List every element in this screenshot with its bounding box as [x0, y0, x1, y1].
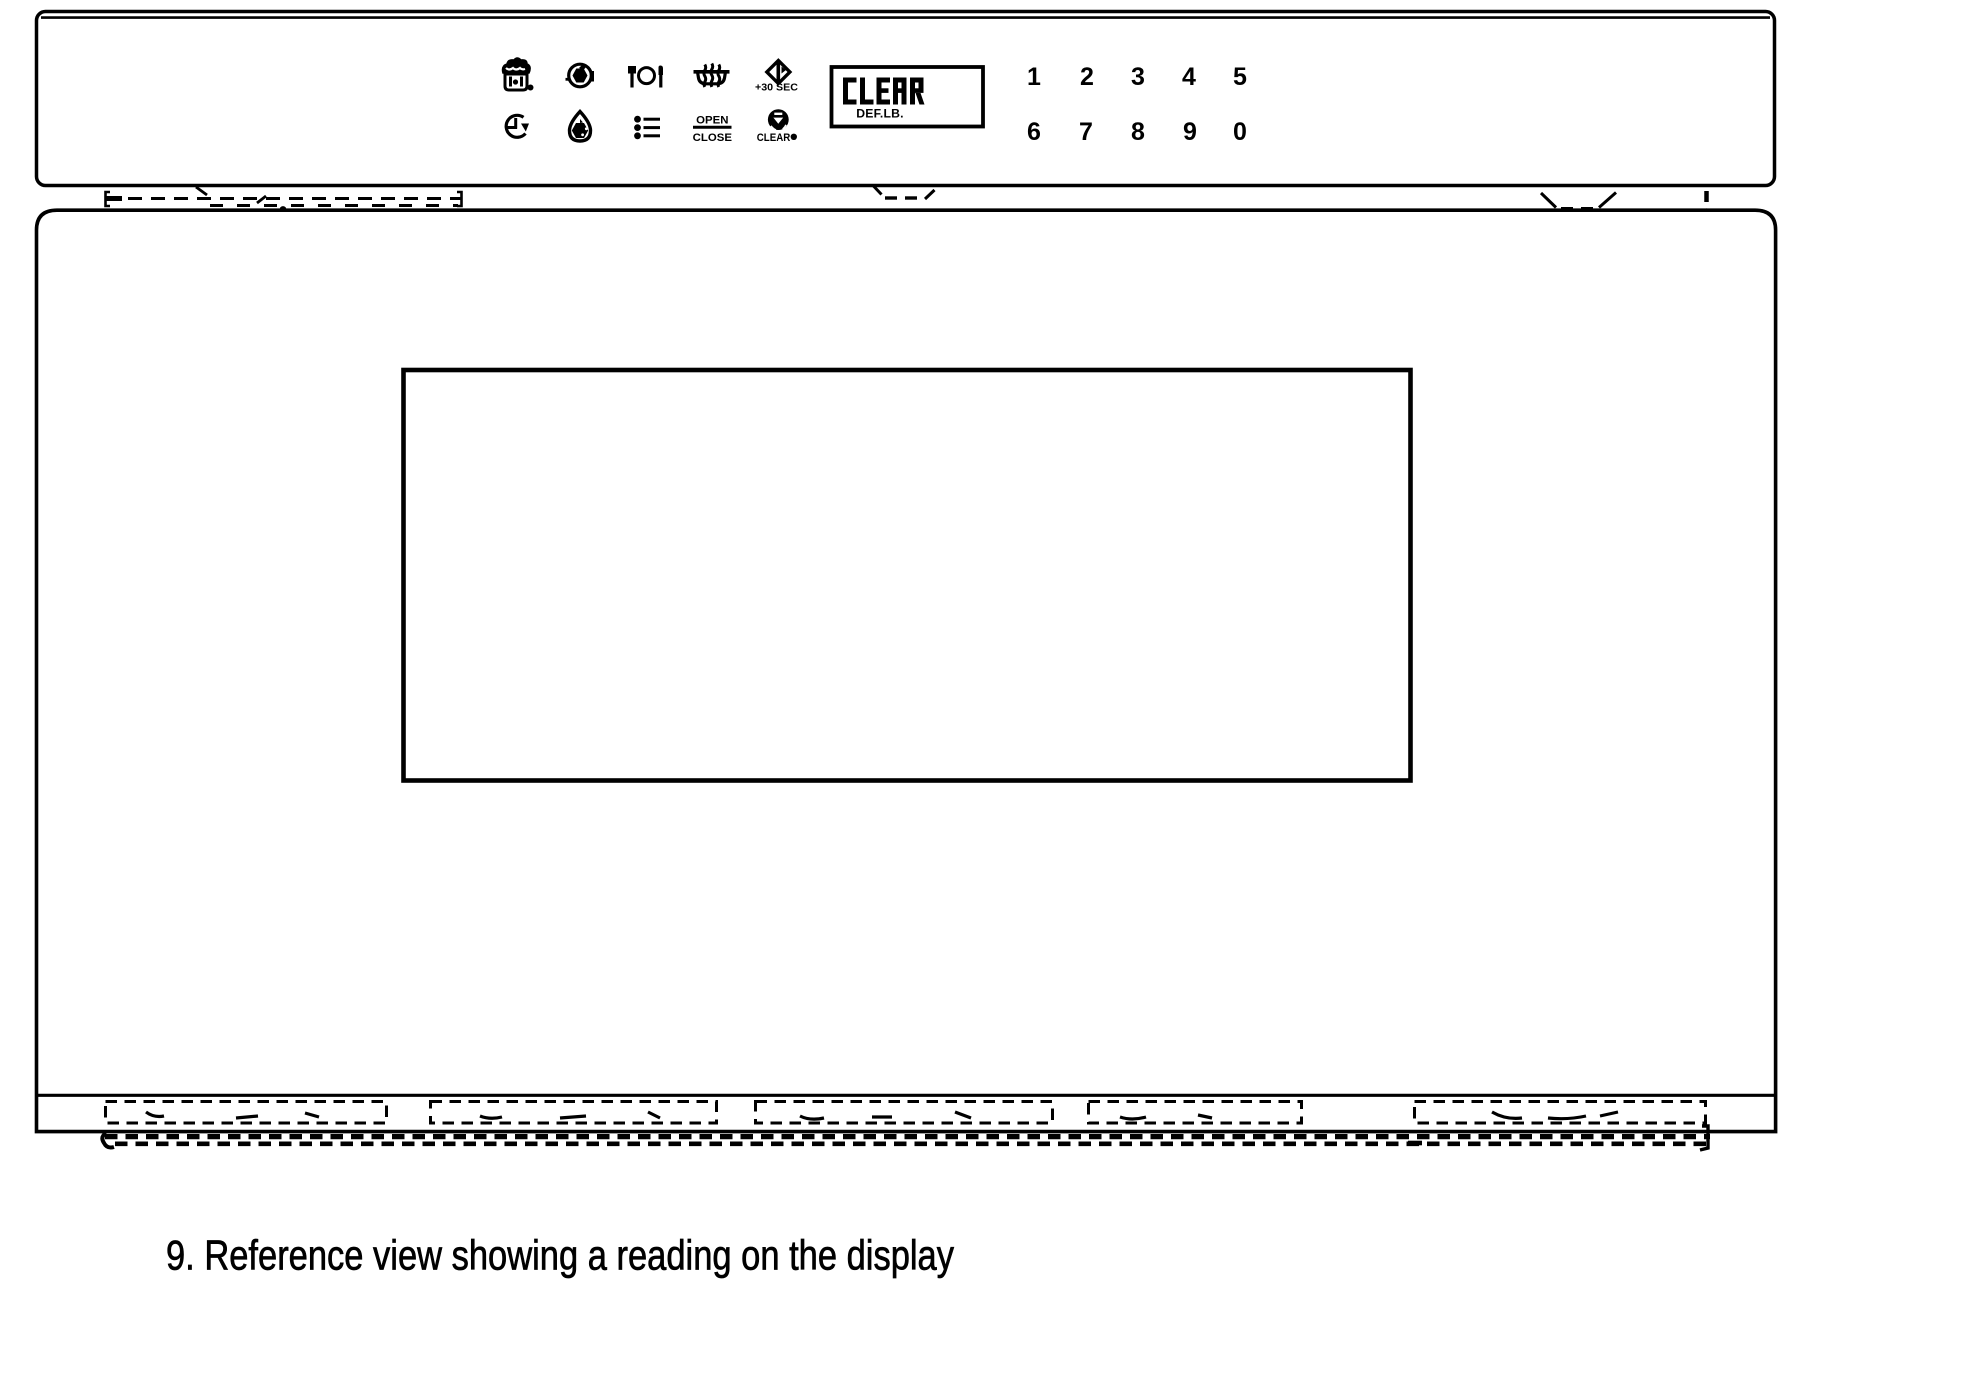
svg-text:9: 9: [1183, 118, 1197, 146]
svg-text:2: 2: [1080, 63, 1094, 91]
svg-text:CLEAR: CLEAR: [757, 132, 791, 144]
svg-text:CLOSE: CLOSE: [693, 132, 733, 144]
svg-text:7: 7: [1079, 118, 1093, 146]
svg-text:9. Reference view showing a re: 9. Reference view showing a reading on t…: [166, 1233, 954, 1279]
svg-text:OPEN: OPEN: [696, 115, 728, 127]
svg-text:6: 6: [1027, 118, 1041, 146]
svg-text:0: 0: [1233, 118, 1247, 146]
svg-text:+30 SEC: +30 SEC: [755, 83, 798, 94]
svg-text:1: 1: [1027, 63, 1041, 91]
svg-text:4: 4: [1182, 63, 1196, 91]
svg-text:DEF.LB.: DEF.LB.: [856, 106, 903, 120]
svg-text:3: 3: [1131, 63, 1145, 91]
svg-text:5: 5: [1233, 63, 1247, 91]
svg-text:8: 8: [1131, 118, 1145, 146]
